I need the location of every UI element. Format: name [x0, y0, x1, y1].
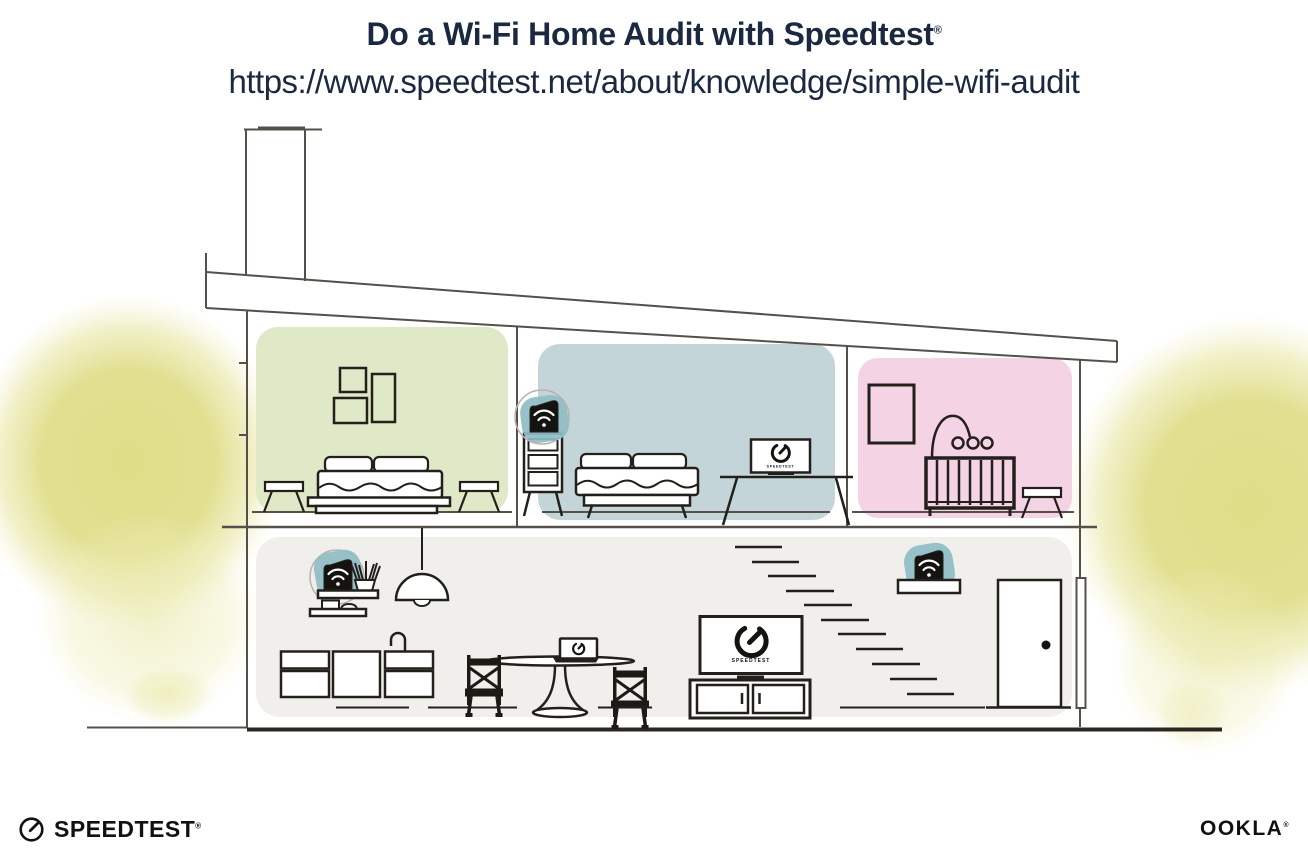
laptop-screen-label: SPEEDTEST: [767, 465, 795, 469]
door: [986, 580, 1071, 708]
ookla-logo-text: OOKLA®: [1200, 817, 1290, 840]
house-illustration: SPEEDTEST: [0, 0, 1308, 861]
tv: SPEEDTEST: [700, 617, 802, 678]
desk-laptop: SPEEDTEST: [751, 440, 810, 476]
tv-screen-label: SPEEDTEST: [732, 658, 771, 664]
speedtest-logo: SPEEDTEST®: [18, 816, 202, 843]
bed-green: [308, 457, 450, 513]
gauge-icon: [18, 816, 45, 843]
right-tree: [1063, 315, 1308, 757]
stair-shelf: [898, 580, 960, 593]
tv-console: [690, 680, 810, 718]
speedtest-logo-text: SPEEDTEST®: [54, 816, 202, 843]
door-knob: [1042, 641, 1051, 650]
speedtest-trademark: ®: [195, 821, 201, 830]
ground-line: [87, 728, 1222, 730]
wall-shelf-upper: [318, 591, 378, 599]
speedtest-wordmark: SPEEDTEST: [54, 816, 195, 842]
dining-laptop: [553, 639, 599, 663]
ookla-logo: OOKLA®: [1200, 817, 1290, 841]
left-tree: [0, 294, 286, 725]
ookla-wordmark: OOKLA: [1200, 817, 1283, 840]
infographic-page: Do a Wi-Fi Home Audit with Speedtest® ht…: [0, 0, 1308, 861]
chimney: [244, 128, 322, 281]
ookla-trademark: ®: [1283, 822, 1290, 829]
